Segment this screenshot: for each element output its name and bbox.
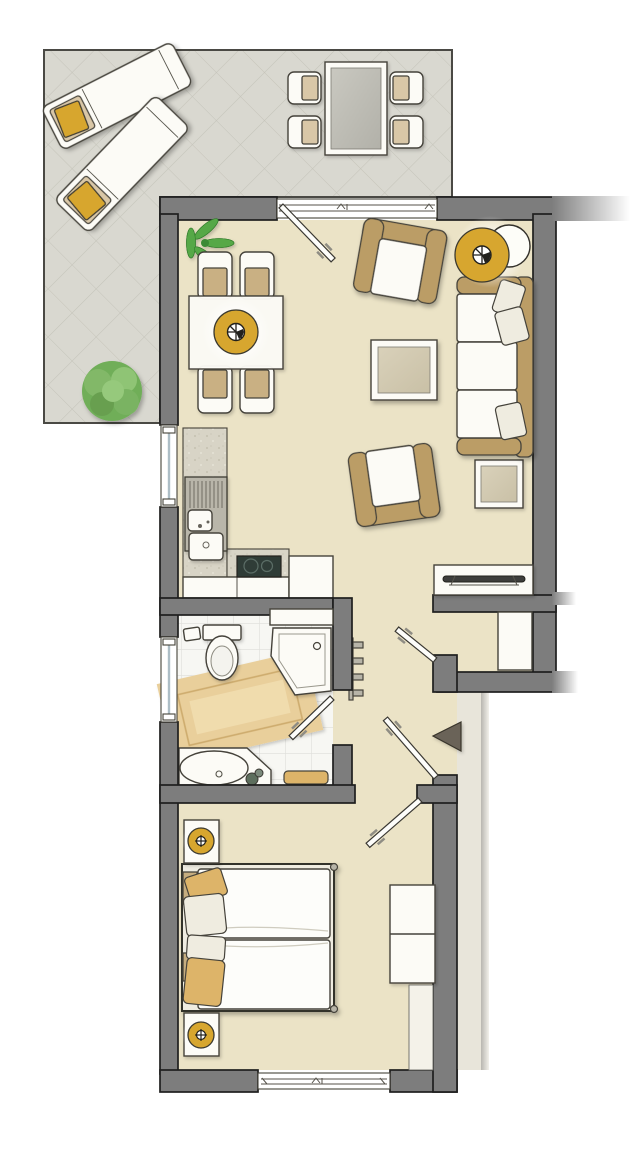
coffee-table bbox=[371, 340, 437, 400]
bath-mat bbox=[284, 771, 328, 784]
wall-fade-hall bbox=[552, 671, 578, 693]
terrace-sliding-door bbox=[277, 199, 437, 218]
kitchen-window bbox=[161, 425, 177, 507]
bedroom-window bbox=[258, 1073, 390, 1089]
floor-plan bbox=[0, 0, 630, 1152]
wardrobe bbox=[390, 885, 435, 983]
wall-panel bbox=[409, 985, 433, 1070]
sideboard bbox=[434, 565, 533, 595]
outdoor-chair-4 bbox=[390, 116, 423, 148]
wall-fade-mid bbox=[552, 592, 576, 605]
kitchen-base-cabinets bbox=[183, 577, 289, 598]
shrub bbox=[82, 361, 142, 421]
bathroom-shelf bbox=[270, 609, 333, 625]
kitchen-tall-unit bbox=[289, 556, 333, 598]
outdoor-table bbox=[325, 62, 387, 155]
pendant-lamp bbox=[202, 298, 270, 366]
outdoor-chair-1 bbox=[288, 72, 321, 104]
sofa bbox=[457, 277, 533, 457]
floor-plan-canvas bbox=[0, 0, 630, 1152]
armchair-1 bbox=[352, 217, 448, 304]
wall-fade-top bbox=[552, 196, 630, 221]
built-in-closet bbox=[498, 612, 532, 670]
side-table bbox=[475, 460, 523, 508]
table-lamp-top bbox=[182, 822, 220, 860]
dining-chair-4 bbox=[240, 366, 274, 413]
toilet-paper-holder bbox=[183, 627, 201, 641]
table-lamp-bottom bbox=[182, 1016, 220, 1054]
dining-chair-3 bbox=[198, 366, 232, 413]
armchair-2 bbox=[347, 443, 440, 528]
bed-pillow-gold-2 bbox=[183, 957, 226, 1007]
dining-chair-2 bbox=[240, 252, 274, 299]
bed-pillow-white-1 bbox=[183, 893, 227, 937]
landing-fade bbox=[481, 692, 489, 1070]
kitchen-sink bbox=[185, 477, 227, 560]
outdoor-chair-2 bbox=[288, 116, 321, 148]
dining-chair-1 bbox=[198, 252, 232, 299]
toilet bbox=[203, 625, 241, 680]
outdoor-chair-3 bbox=[390, 72, 423, 104]
double-bed bbox=[182, 864, 338, 1013]
bathroom-window bbox=[161, 637, 177, 722]
